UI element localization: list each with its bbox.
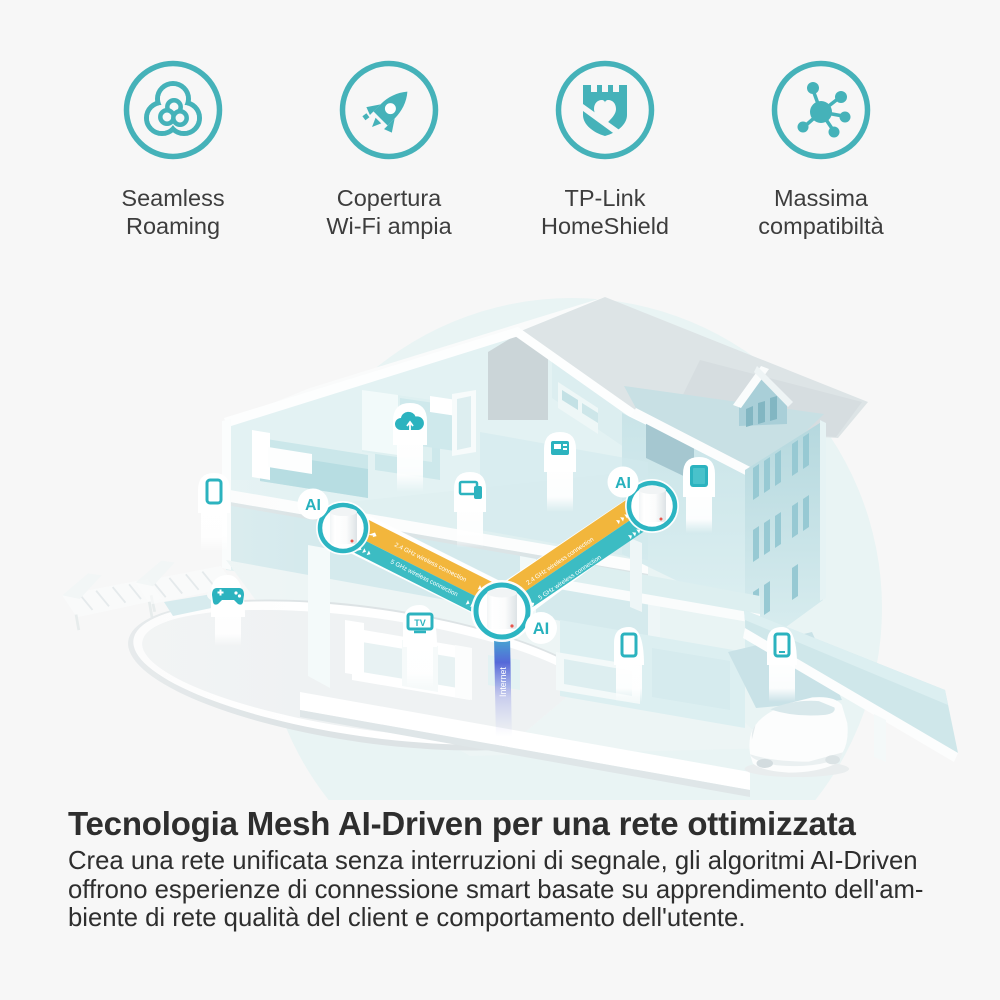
svg-text:AI: AI (305, 497, 321, 514)
svg-text:AI: AI (533, 620, 550, 638)
svg-text:AI: AI (615, 475, 631, 492)
svg-text:Internet: Internet (498, 667, 508, 697)
svg-text:TV: TV (414, 618, 426, 628)
